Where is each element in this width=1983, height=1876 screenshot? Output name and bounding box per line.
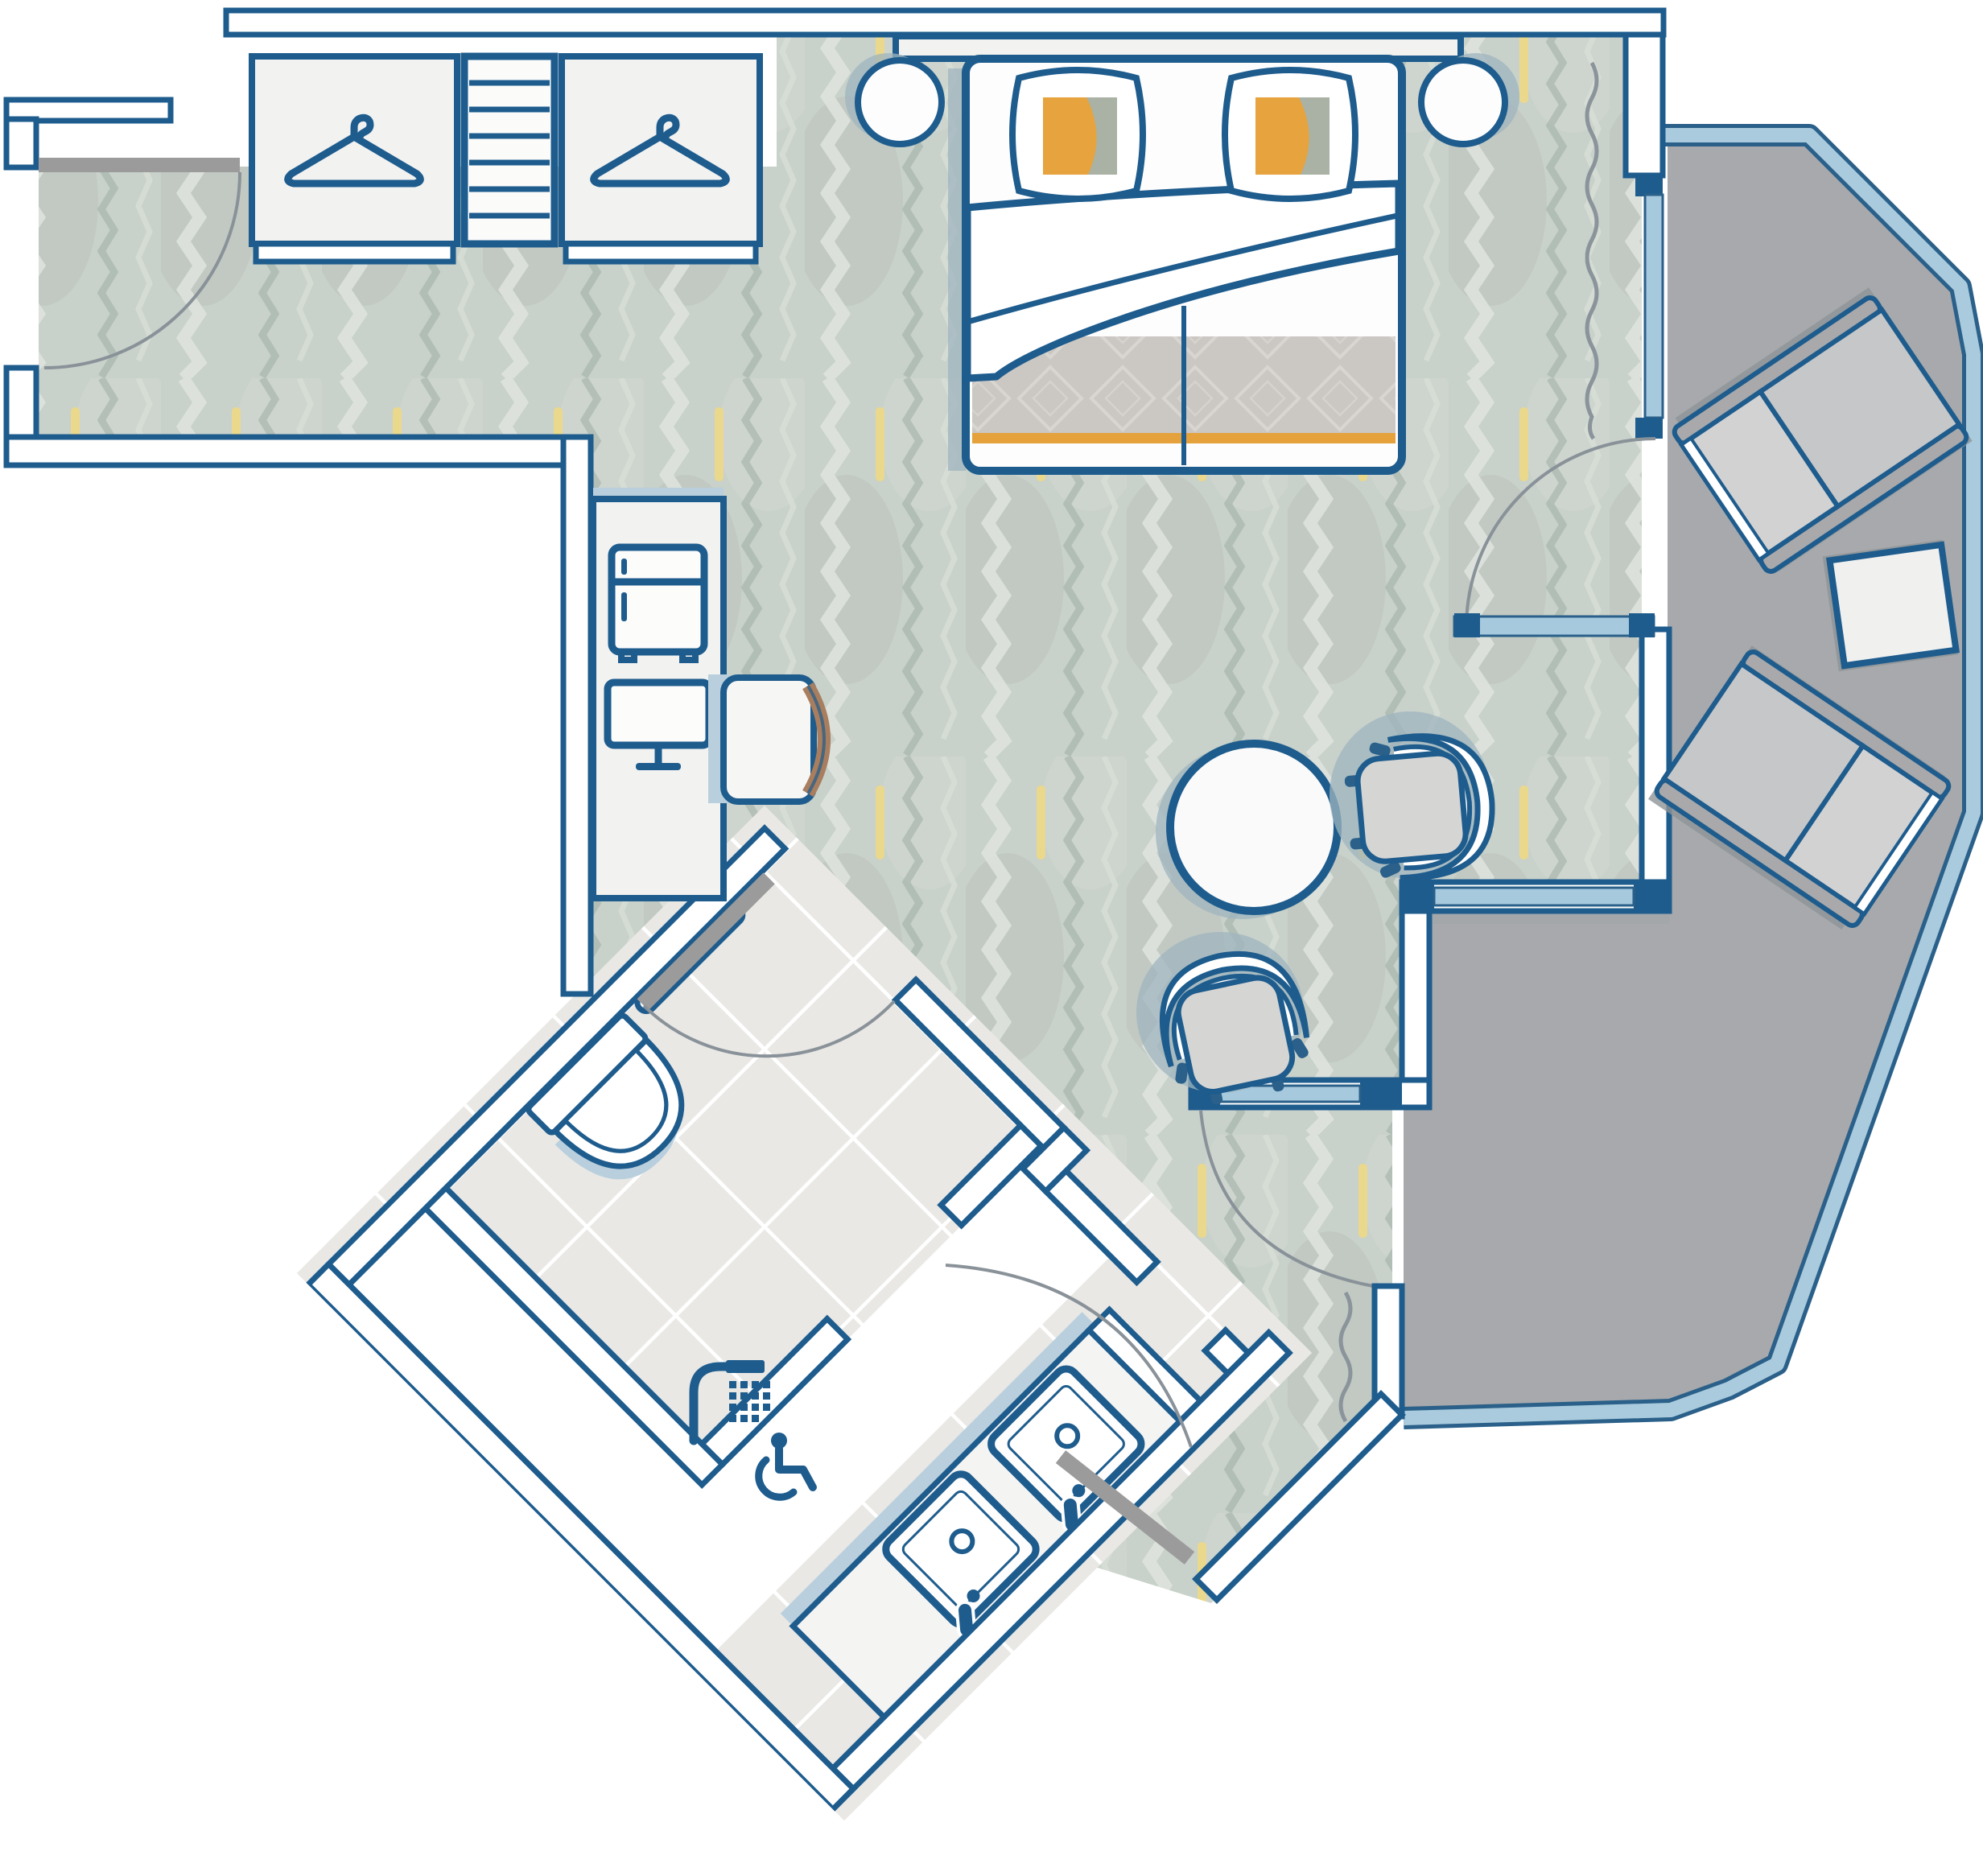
nightstand-right (1421, 60, 1505, 144)
pillow-left (1012, 70, 1143, 199)
luggage-shelf (464, 56, 554, 244)
pillow-right (1225, 70, 1355, 199)
top-wall (226, 10, 1663, 35)
top-right-corner-wall (1626, 35, 1663, 175)
balcony-wall-mid (1402, 911, 1429, 1082)
notch-cap-left (1402, 882, 1434, 911)
desk-chair (708, 674, 824, 803)
upper-door-cap-b (1629, 613, 1655, 637)
nightstand-left (858, 60, 942, 144)
notch-window-glazing (1434, 888, 1634, 905)
east-sill-bottom (1635, 418, 1663, 439)
floor-plan (0, 0, 1983, 1876)
wardrobe-left (252, 56, 457, 262)
east-wall-lower (1642, 629, 1669, 884)
round-table (1170, 744, 1338, 911)
balcony-side-table (1823, 540, 1959, 671)
east-window-glazing (1645, 195, 1663, 418)
east-sill-top (1635, 174, 1663, 196)
upper-door-cap-a (1454, 613, 1480, 637)
notch-cap-right (1634, 882, 1669, 911)
upper-balcony-door-leaf (1454, 616, 1654, 636)
wardrobe-right (562, 56, 760, 262)
west-wall (563, 437, 591, 994)
fridge-icon (612, 547, 704, 660)
lower-door-cap-right (1360, 1080, 1402, 1107)
entry-door-leaf (39, 158, 240, 172)
hall-bottom-wall (6, 437, 590, 465)
left-wall-upper (6, 119, 36, 167)
